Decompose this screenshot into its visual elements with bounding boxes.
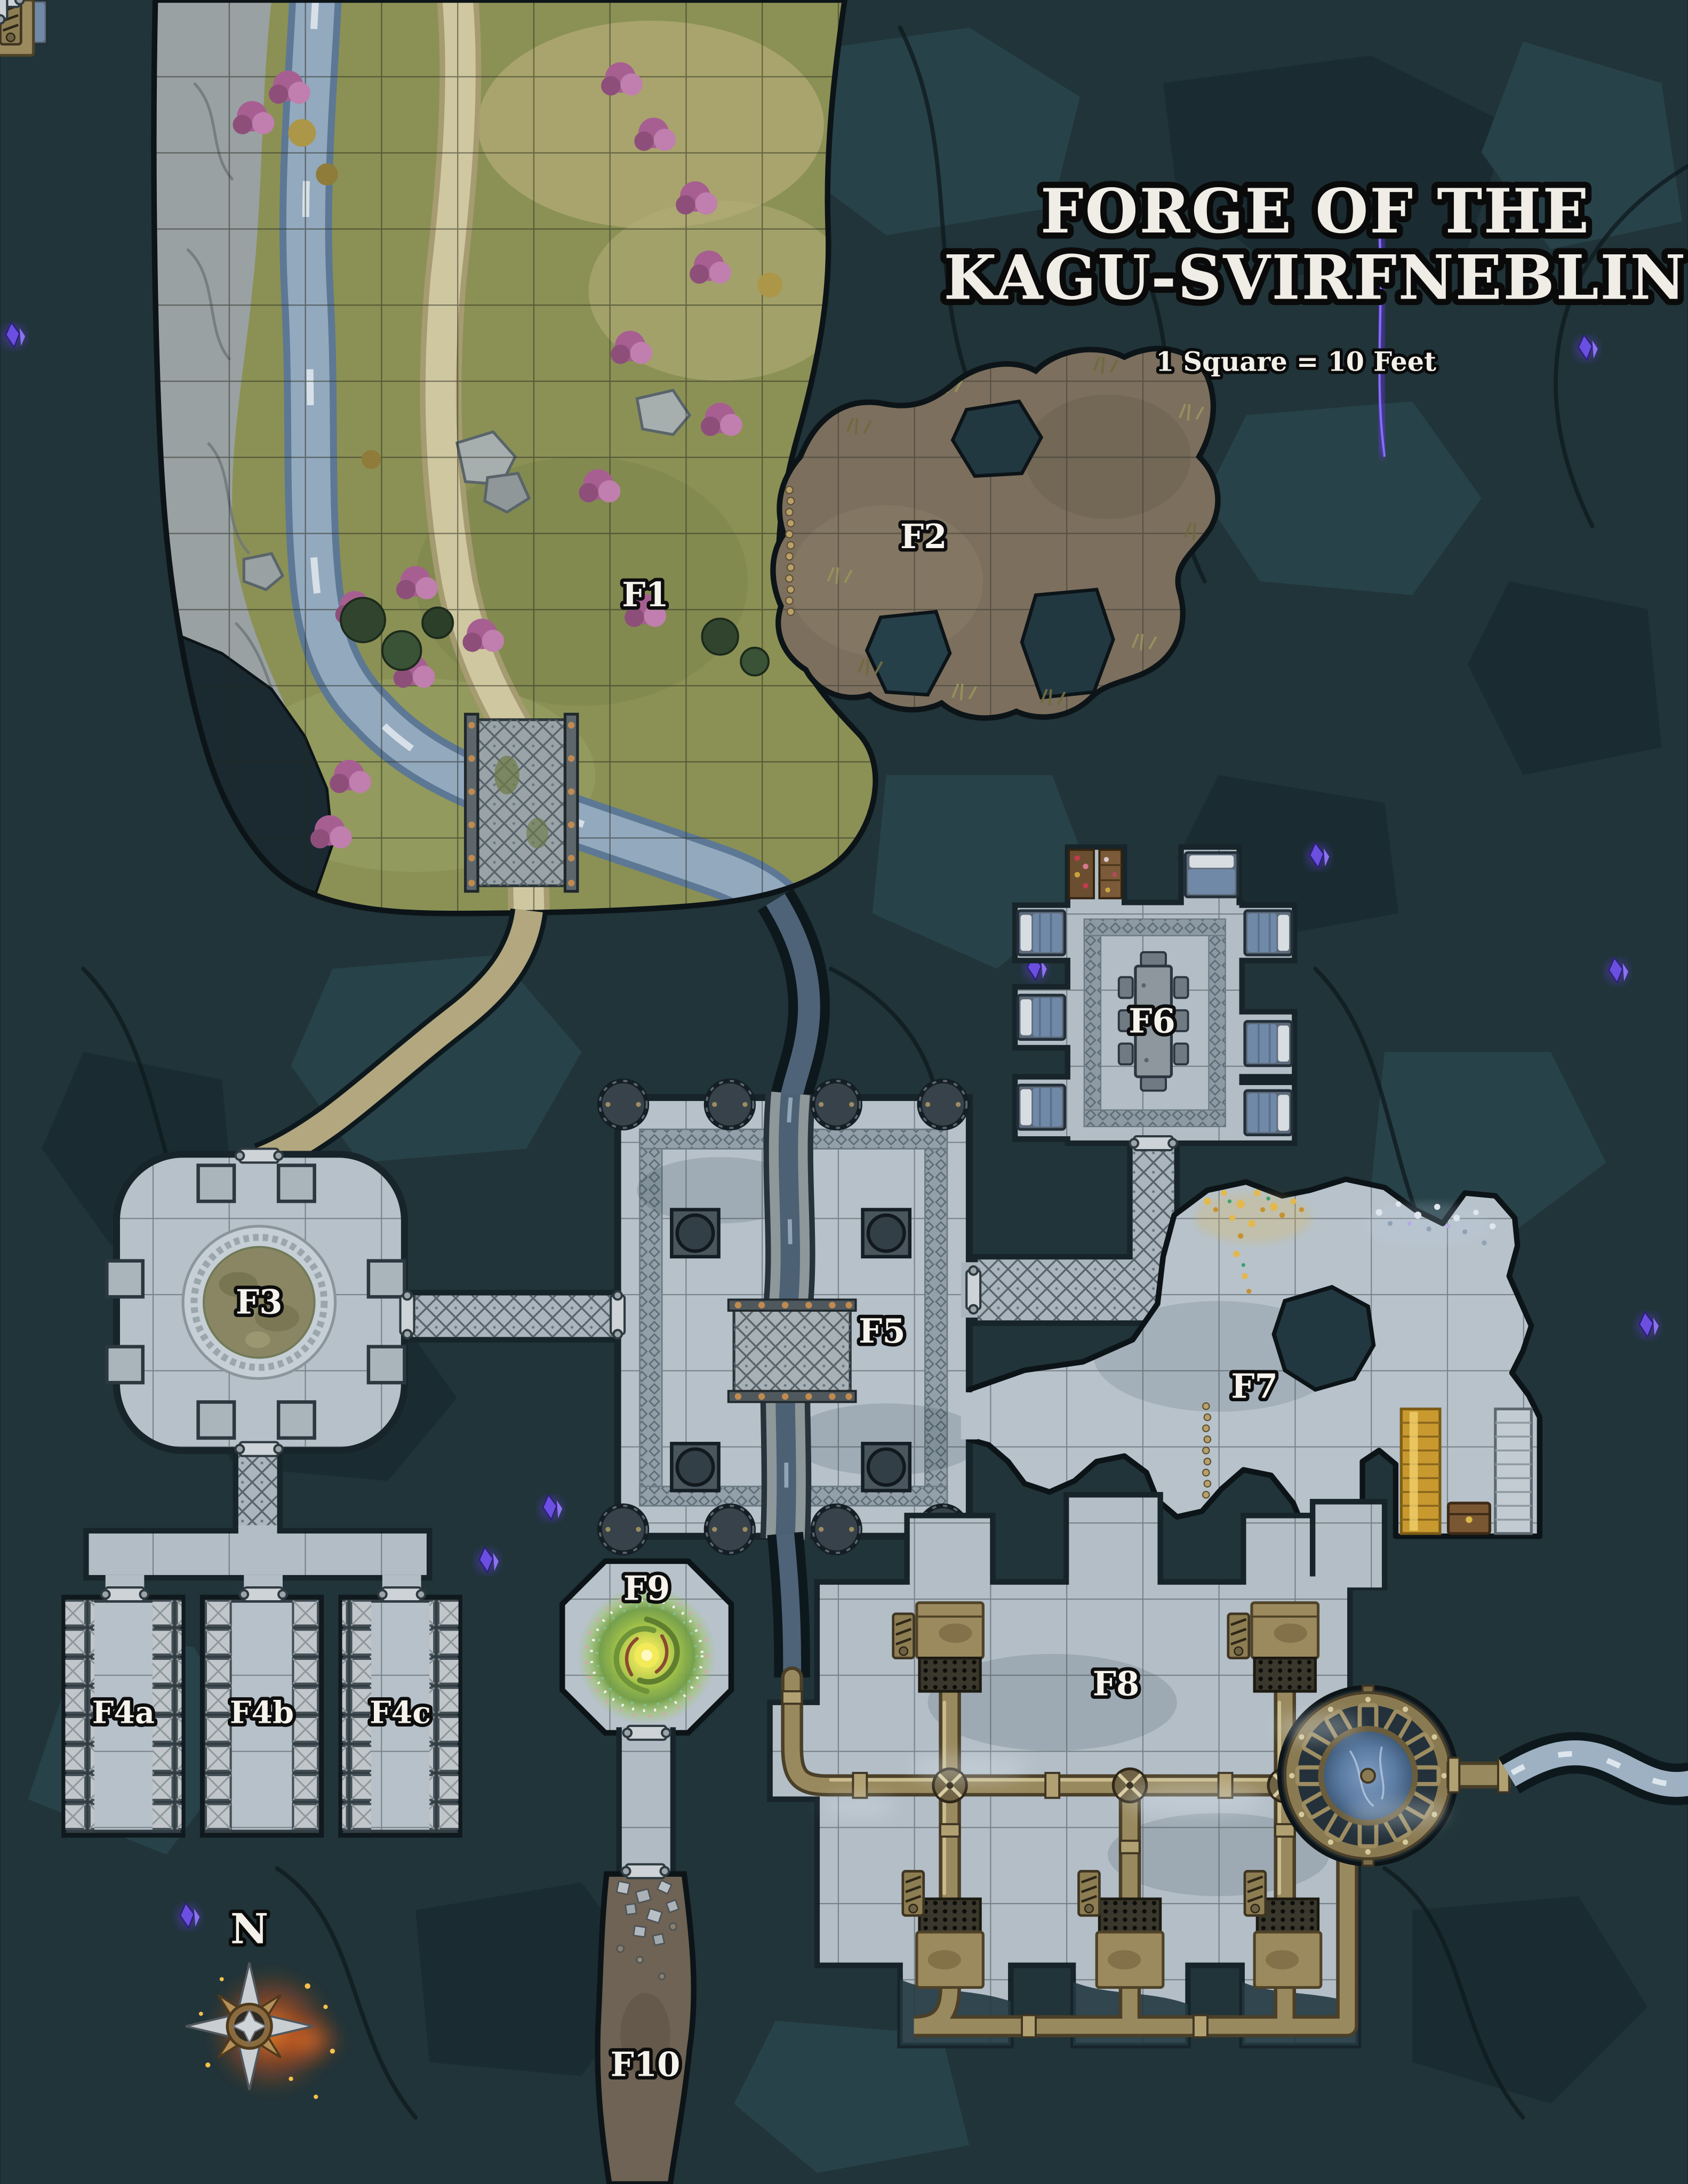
hall-bridge — [729, 1299, 856, 1402]
scale-note: 1 Square = 10 Feet — [1156, 347, 1436, 378]
wine-rack — [1069, 850, 1094, 898]
battle-map: N FORGE OF THE KAGU-SVIRFNEBLIN 1 Square… — [0, 0, 1688, 2184]
cave-river-lower — [785, 1533, 792, 1677]
room-label-f3: F3 — [236, 1282, 283, 1321]
room-label-f8: F8 — [1093, 1665, 1140, 1704]
gold-bar-pile — [1401, 1409, 1440, 1533]
corridor-f3-south — [236, 1450, 280, 1533]
room-label-f4c: F4c — [370, 1695, 431, 1731]
room-label-f4b: F4b — [230, 1695, 294, 1731]
potion-shelf — [1099, 850, 1122, 898]
treasure-chest — [1449, 1503, 1490, 1533]
corridor-f9-south — [619, 1727, 673, 1874]
silver-pile — [1495, 1409, 1531, 1533]
room-label-f9: F9 — [623, 1569, 670, 1608]
room-label-f1: F1 — [622, 575, 669, 614]
compass-north-label: N — [230, 1905, 268, 1953]
rope-beads-f7 — [1203, 1403, 1211, 1498]
room-label-f2: F2 — [900, 517, 947, 556]
room-label-f7: F7 — [1231, 1367, 1278, 1406]
room-label-f5: F5 — [859, 1312, 906, 1351]
room-label-f4a: F4a — [92, 1695, 155, 1731]
room-label-f6: F6 — [1129, 1001, 1175, 1040]
map-canvas: N FORGE OF THE KAGU-SVIRFNEBLIN 1 Square… — [0, 0, 1688, 2184]
title-line-1: FORGE OF THE — [1041, 175, 1590, 247]
region-f10-passage — [597, 1874, 693, 2184]
hall-f7-opening — [961, 1392, 978, 1439]
corridor-f3-to-f5 — [410, 1292, 621, 1339]
title-line-2: KAGU-SVIRFNEBLIN — [943, 242, 1687, 314]
room-label-f10: F10 — [611, 2045, 681, 2084]
surface-bridge — [466, 714, 578, 891]
